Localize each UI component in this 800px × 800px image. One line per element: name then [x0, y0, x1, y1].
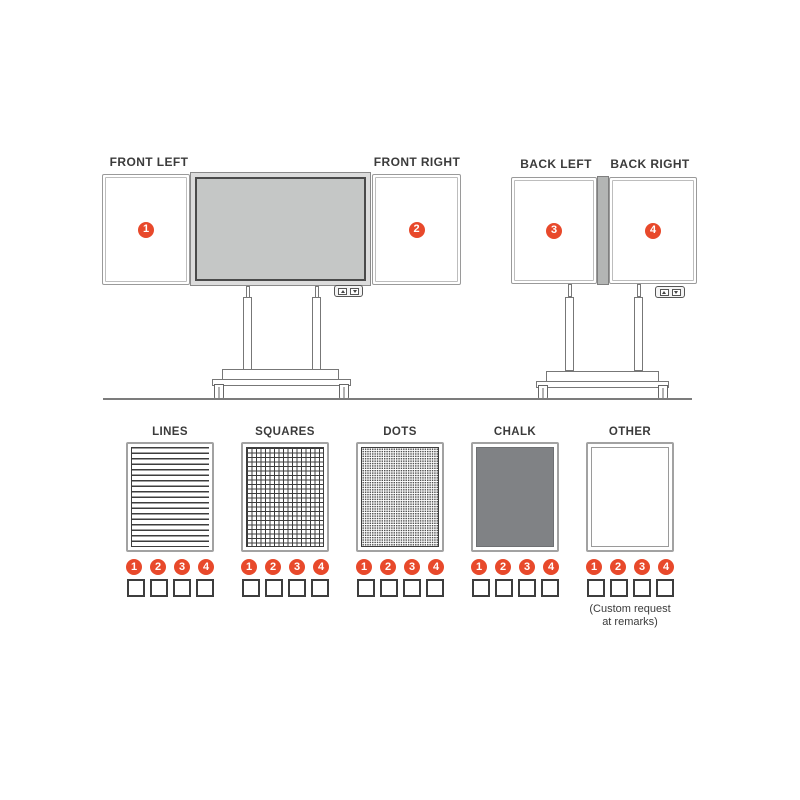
checkbox-chalk-panel-1[interactable] — [472, 579, 490, 597]
pattern-label: LINES — [120, 426, 220, 438]
down-arrow-icon — [674, 291, 678, 294]
chalk-pattern-preview — [476, 447, 554, 547]
pattern-column-lines: LINES 1 2 3 4 — [120, 426, 220, 597]
pattern-swatch-dots — [356, 442, 444, 552]
panel-number-badge: 4 — [645, 223, 661, 239]
pattern-label: CHALK — [465, 426, 565, 438]
panel-number-row: 1 2 3 4 — [465, 559, 565, 575]
checkbox-row — [120, 579, 220, 597]
panel-number-row: 1 2 3 4 — [350, 559, 450, 575]
panel-order-sheet: FRONT LEFT FRONT RIGHT 1 2 BACK LEFT BAC… — [0, 0, 800, 800]
panel-number-row: 1 2 3 4 — [235, 559, 335, 575]
checkbox-lines-panel-4[interactable] — [196, 579, 214, 597]
checkbox-row — [580, 579, 680, 597]
checkbox-dots-panel-2[interactable] — [380, 579, 398, 597]
checkbox-chalk-panel-4[interactable] — [541, 579, 559, 597]
custom-request-note: (Custom request at remarks) — [580, 603, 680, 629]
panel-2-badge: 2 — [380, 559, 396, 575]
panel-4-badge: 4 — [658, 559, 674, 575]
pattern-column-dots: DOTS 1 2 3 4 — [350, 426, 450, 597]
up-arrow-icon — [341, 290, 345, 293]
dots-pattern-preview — [361, 447, 439, 547]
stand-leg-column — [243, 297, 252, 372]
panel-3-badge: 3 — [174, 559, 190, 575]
stand-leg-column — [565, 297, 574, 371]
checkbox-other-panel-3[interactable] — [633, 579, 651, 597]
pattern-column-other: OTHER 1 2 3 4 (Custom request at remarks… — [580, 426, 680, 629]
panel-3-badge: 3 — [289, 559, 305, 575]
height-control-panel — [334, 285, 363, 297]
stand-leg-stub — [568, 284, 572, 297]
other-pattern-preview — [591, 447, 669, 547]
stand-base-bar — [212, 379, 351, 386]
panel-1-badge: 1 — [586, 559, 602, 575]
checkbox-squares-panel-1[interactable] — [242, 579, 260, 597]
caster-fork — [663, 388, 664, 398]
panel-4-badge: 4 — [313, 559, 329, 575]
panel-number-badge: 2 — [409, 222, 425, 238]
pattern-swatch-chalk — [471, 442, 559, 552]
lines-pattern-preview — [131, 447, 209, 547]
caster-fork — [543, 388, 544, 398]
checkbox-row — [465, 579, 565, 597]
panel-1-badge: 1 — [356, 559, 372, 575]
height-up-button — [660, 289, 669, 296]
display-screen — [190, 172, 371, 286]
front-right-label: FRONT RIGHT — [357, 155, 477, 169]
custom-request-note-line2: at remarks) — [580, 616, 680, 629]
checkbox-squares-panel-4[interactable] — [311, 579, 329, 597]
pattern-swatch-lines — [126, 442, 214, 552]
checkbox-row — [350, 579, 450, 597]
checkbox-chalk-panel-2[interactable] — [495, 579, 513, 597]
up-arrow-icon — [662, 291, 666, 294]
front-left-label: FRONT LEFT — [89, 155, 209, 169]
pattern-label: DOTS — [350, 426, 450, 438]
height-down-button — [350, 288, 359, 295]
down-arrow-icon — [353, 290, 357, 293]
height-down-button — [672, 289, 681, 296]
pattern-swatch-other — [586, 442, 674, 552]
pattern-column-chalk: CHALK 1 2 3 4 — [465, 426, 565, 597]
panel-2-badge: 2 — [610, 559, 626, 575]
height-control-panel — [655, 286, 685, 298]
pattern-swatch-squares — [241, 442, 329, 552]
checkbox-dots-panel-3[interactable] — [403, 579, 421, 597]
checkbox-lines-panel-1[interactable] — [127, 579, 145, 597]
panel-number-badge: 3 — [546, 223, 562, 239]
checkbox-squares-panel-2[interactable] — [265, 579, 283, 597]
checkbox-other-panel-2[interactable] — [610, 579, 628, 597]
custom-request-note-line1: (Custom request — [580, 603, 680, 616]
panel-3-badge: 3 — [634, 559, 650, 575]
screen-edge-strip — [597, 176, 609, 285]
checkbox-lines-panel-3[interactable] — [173, 579, 191, 597]
checkbox-chalk-panel-3[interactable] — [518, 579, 536, 597]
panel-1-badge: 1 — [471, 559, 487, 575]
height-up-button — [338, 288, 347, 295]
stand-base-bar — [536, 381, 669, 388]
squares-pattern-preview — [246, 447, 324, 547]
panel-front-right: 2 — [372, 174, 461, 285]
panel-2-badge: 2 — [495, 559, 511, 575]
panel-3-badge: 3 — [519, 559, 535, 575]
checkbox-row — [235, 579, 335, 597]
panel-back-right: 4 — [609, 177, 697, 284]
pattern-label: OTHER — [580, 426, 680, 438]
panel-number-row: 1 2 3 4 — [120, 559, 220, 575]
pattern-column-squares: SQUARES 1 2 3 4 — [235, 426, 335, 597]
checkbox-squares-panel-3[interactable] — [288, 579, 306, 597]
checkbox-other-panel-4[interactable] — [656, 579, 674, 597]
checkbox-other-panel-1[interactable] — [587, 579, 605, 597]
panel-4-badge: 4 — [198, 559, 214, 575]
panel-3-badge: 3 — [404, 559, 420, 575]
caster-fork — [344, 387, 345, 398]
panel-number-row: 1 2 3 4 — [580, 559, 680, 575]
stand-leg-column — [634, 297, 643, 371]
ground-line — [103, 398, 692, 400]
panel-number-badge: 1 — [138, 222, 154, 238]
panel-back-left: 3 — [511, 177, 597, 284]
caster-fork — [219, 387, 220, 398]
panel-1-badge: 1 — [241, 559, 257, 575]
stand-leg-stub — [637, 284, 641, 297]
panel-front-left: 1 — [102, 174, 190, 285]
display-surface — [195, 177, 366, 281]
back-right-label: BACK RIGHT — [590, 157, 710, 171]
checkbox-dots-panel-1[interactable] — [357, 579, 375, 597]
panel-2-badge: 2 — [265, 559, 281, 575]
panel-2-badge: 2 — [150, 559, 166, 575]
pattern-label: SQUARES — [235, 426, 335, 438]
checkbox-dots-panel-4[interactable] — [426, 579, 444, 597]
panel-4-badge: 4 — [428, 559, 444, 575]
panel-4-badge: 4 — [543, 559, 559, 575]
panel-1-badge: 1 — [126, 559, 142, 575]
stand-leg-column — [312, 297, 321, 372]
checkbox-lines-panel-2[interactable] — [150, 579, 168, 597]
